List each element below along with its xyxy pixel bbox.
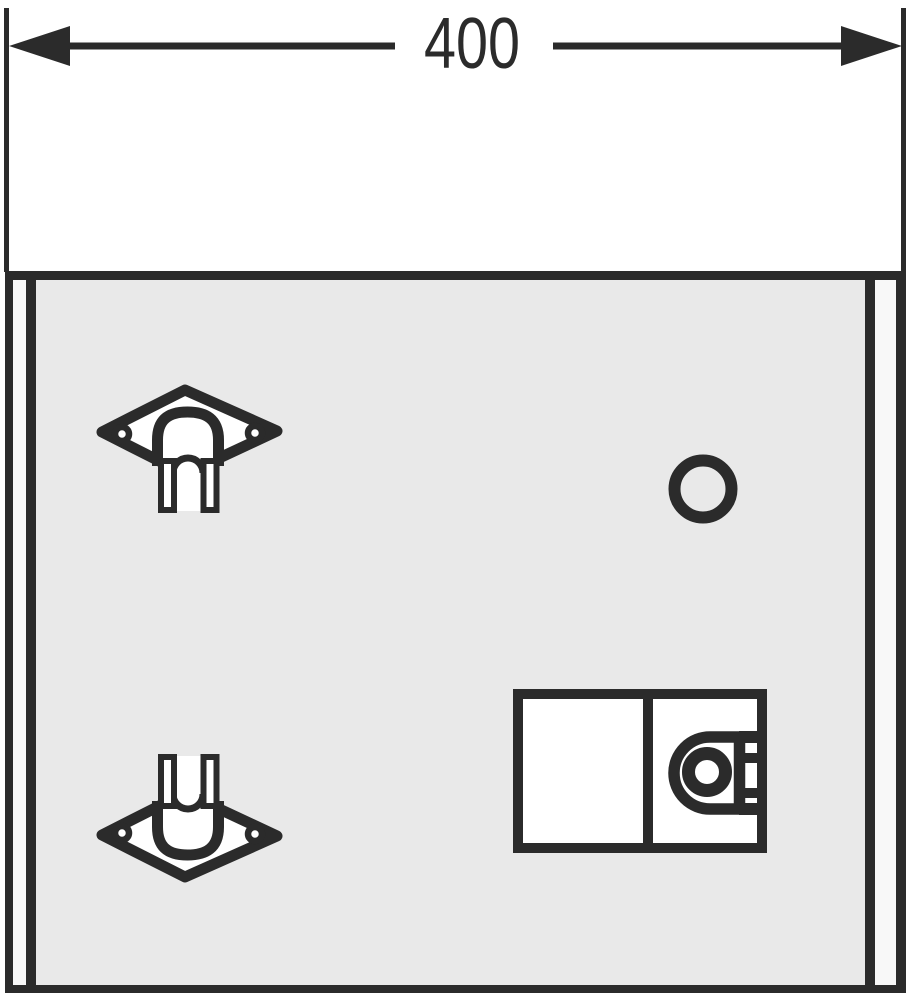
- extension-line-right: [901, 8, 906, 272]
- panel-edge-strip-left: [13, 280, 26, 985]
- lock-tab-upper-small: [745, 753, 763, 763]
- extension-line-left: [4, 8, 9, 272]
- panel-inner-line-right: [865, 280, 875, 985]
- lock-cylinder-icon: [689, 754, 726, 791]
- technical-drawing: 400: [0, 0, 913, 1000]
- front-panel: [5, 271, 906, 993]
- lock-tab-bottom: [739, 803, 763, 815]
- arrowhead-left-icon: [9, 26, 70, 66]
- inspection-latch: [518, 690, 763, 853]
- dimension-label: 400: [424, 4, 520, 84]
- dimension-line-right: [553, 43, 845, 50]
- panel-inner-line-left: [26, 280, 36, 985]
- dimension-line-left: [66, 43, 395, 50]
- lock-tab-top: [739, 731, 763, 743]
- dimension-annotation: 400: [4, 4, 906, 272]
- panel-edge-strip-right: [875, 280, 896, 985]
- arrowhead-right-icon: [841, 26, 902, 66]
- panel-face: [13, 280, 896, 985]
- lock-tab-lower-small: [745, 788, 763, 798]
